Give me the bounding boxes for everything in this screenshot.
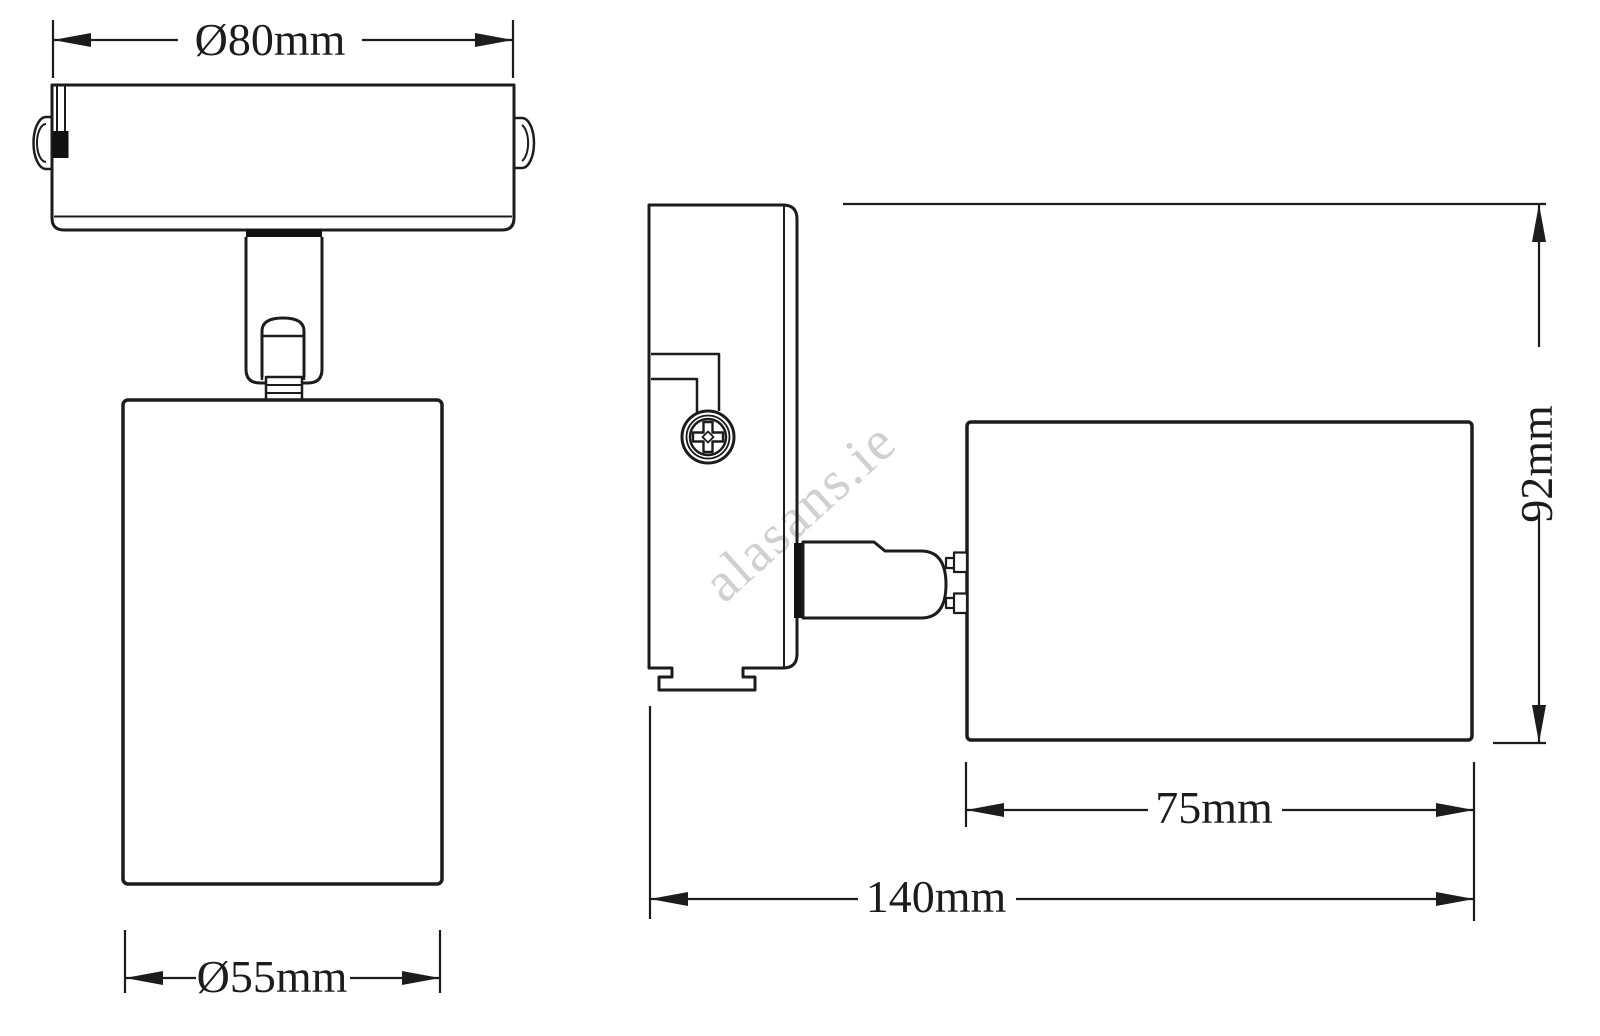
arrowhead-left xyxy=(650,892,688,906)
dim-label-head-diameter: Ø55mm xyxy=(197,954,348,1000)
dim-label-height: 92mm xyxy=(1514,405,1560,523)
side-screw-left xyxy=(34,117,52,169)
swivel-pivot xyxy=(262,318,304,377)
lamp-head-side xyxy=(967,422,1472,740)
stem-collar xyxy=(246,229,322,237)
lamp-head-front xyxy=(123,400,442,884)
dim-label-overall-length: 140mm xyxy=(866,874,1007,920)
arrowhead-up xyxy=(1532,204,1546,242)
stem-and-swivel xyxy=(246,229,322,401)
arrowhead-left xyxy=(53,33,91,47)
arrowhead-left xyxy=(125,971,163,985)
canopy-front xyxy=(34,85,534,230)
arrowhead-right xyxy=(475,33,513,47)
front-view xyxy=(34,85,534,884)
dimension-drawing-canvas: Ø80mm Ø55mm 92mm 75mm 140mm alasans.ie xyxy=(0,0,1600,1036)
arrowhead-right xyxy=(1436,803,1474,817)
dim-label-canopy-diameter: Ø80mm xyxy=(195,17,346,63)
swivel-neck xyxy=(266,377,302,401)
arrowhead-right xyxy=(402,971,440,985)
mounting-screw xyxy=(682,411,734,463)
arrowhead-left xyxy=(966,803,1004,817)
arrowhead-right xyxy=(1436,892,1474,906)
side-view xyxy=(649,205,1472,740)
cable-clamp xyxy=(53,131,69,158)
arrowhead-down xyxy=(1532,705,1546,743)
side-screw-right xyxy=(514,118,534,168)
dim-label-head-length: 75mm xyxy=(1155,785,1273,831)
gu10-pins xyxy=(946,553,967,614)
gu10-socket xyxy=(803,542,946,618)
